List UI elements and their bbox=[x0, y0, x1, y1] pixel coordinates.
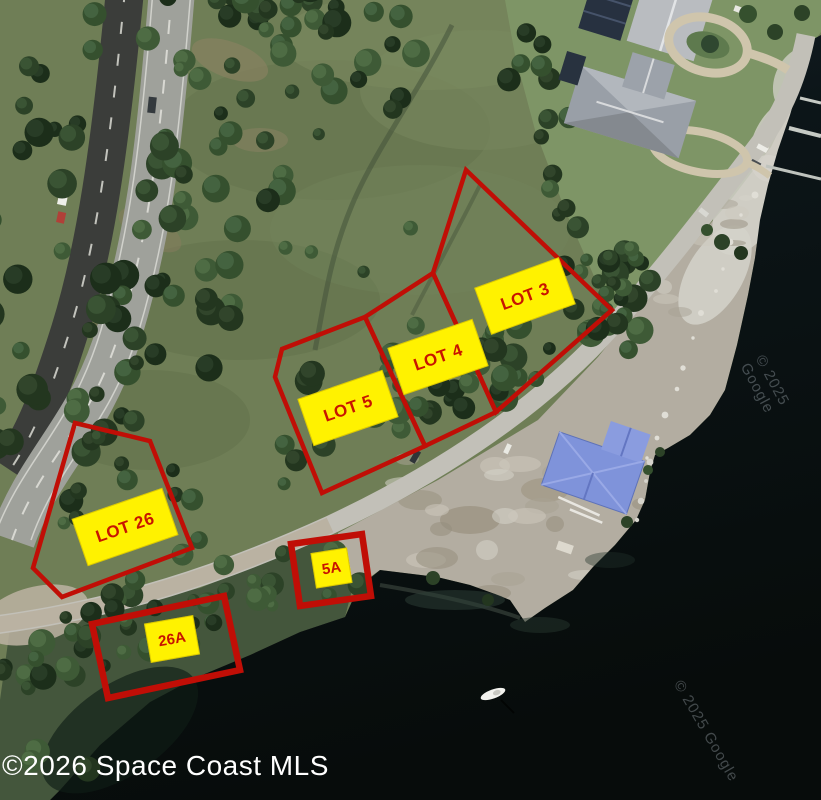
island-tree bbox=[701, 35, 719, 53]
aerial-lot-map: LOT 26 LOT 5 LOT 4 LOT 3 5A 26A ©2026 Sp… bbox=[0, 0, 821, 800]
dark-car bbox=[147, 97, 157, 114]
lot-5a-label: 5A bbox=[310, 547, 352, 588]
satellite-imagery bbox=[0, 0, 821, 800]
lot-26a-label: 26A bbox=[144, 615, 200, 663]
mls-copyright-watermark: ©2026 Space Coast MLS bbox=[2, 750, 329, 782]
